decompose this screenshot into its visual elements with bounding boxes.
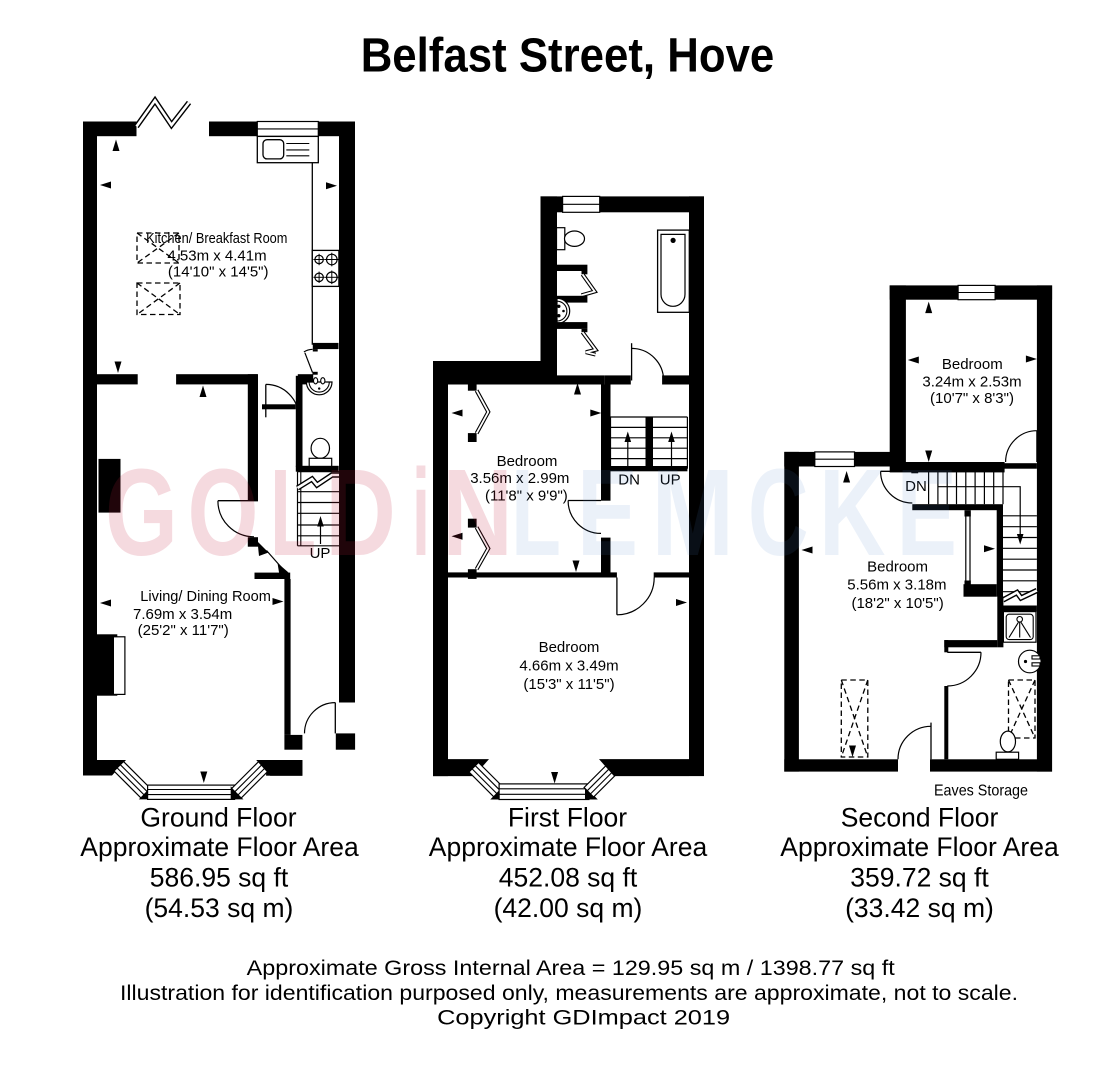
svg-text:C: C	[748, 445, 809, 582]
svg-text:7.69m x 3.54m: 7.69m x 3.54m	[133, 606, 232, 623]
svg-text:4.53m x 4.41m: 4.53m x 4.41m	[167, 247, 266, 264]
svg-text:D: D	[325, 445, 396, 582]
svg-text:L: L	[511, 445, 561, 582]
svg-text:N: N	[442, 445, 513, 582]
svg-text:Eaves Storage: Eaves Storage	[934, 783, 1028, 800]
svg-text:Approximate Gross Internal Are: Approximate Gross Internal Area = 129.95…	[247, 956, 895, 980]
svg-text:(33.42 sq m): (33.42 sq m)	[845, 893, 994, 923]
svg-text:3.24m x 2.53m: 3.24m x 2.53m	[922, 374, 1021, 391]
svg-text:(15'3" x 11'5"): (15'3" x 11'5")	[523, 676, 614, 693]
svg-text:Ground Floor: Ground Floor	[140, 803, 296, 833]
svg-text:O: O	[188, 445, 259, 582]
svg-text:(42.00 sq m): (42.00 sq m)	[494, 893, 643, 923]
svg-text:Second Floor: Second Floor	[841, 803, 999, 833]
svg-text:359.72 sq ft: 359.72 sq ft	[850, 863, 989, 893]
svg-text:(10'7" x 8'3"): (10'7" x 8'3")	[930, 390, 1014, 407]
svg-text:(54.53 sq m): (54.53 sq m)	[145, 893, 294, 923]
svg-text:Approximate Floor Area: Approximate Floor Area	[80, 832, 359, 862]
svg-text:(18'2" x 10'5"): (18'2" x 10'5")	[851, 595, 943, 612]
svg-text:Bedroom: Bedroom	[539, 639, 600, 656]
svg-text:First Floor: First Floor	[508, 803, 627, 833]
svg-text:452.08 sq ft: 452.08 sq ft	[499, 863, 638, 893]
svg-text:i: i	[412, 445, 430, 582]
svg-text:Approximate Floor Area: Approximate Floor Area	[429, 832, 708, 862]
svg-text:4.66m x 3.49m: 4.66m x 3.49m	[519, 658, 618, 675]
svg-text:Belfast Street, Hove: Belfast Street, Hove	[361, 30, 775, 83]
svg-text:Copyright GDImpact 2019: Copyright GDImpact 2019	[437, 1006, 730, 1030]
svg-text:K: K	[819, 445, 886, 582]
svg-text:E: E	[577, 445, 638, 582]
svg-text:Bedroom: Bedroom	[942, 356, 1003, 373]
svg-text:(14'10" x 14'5"): (14'10" x 14'5")	[168, 263, 269, 280]
svg-text:Illustration for identificatio: Illustration for identification purposed…	[120, 981, 1018, 1005]
svg-text:(25'2" x 11'7"): (25'2" x 11'7")	[138, 622, 229, 639]
svg-text:Living/ Dining Room: Living/ Dining Room	[140, 588, 271, 605]
svg-text:G: G	[105, 445, 178, 582]
svg-text:L: L	[270, 445, 316, 582]
svg-text:E: E	[897, 445, 958, 582]
svg-text:586.95 sq ft: 586.95 sq ft	[150, 863, 289, 893]
svg-text:Approximate Floor Area: Approximate Floor Area	[780, 832, 1059, 862]
svg-text:M: M	[652, 445, 735, 582]
